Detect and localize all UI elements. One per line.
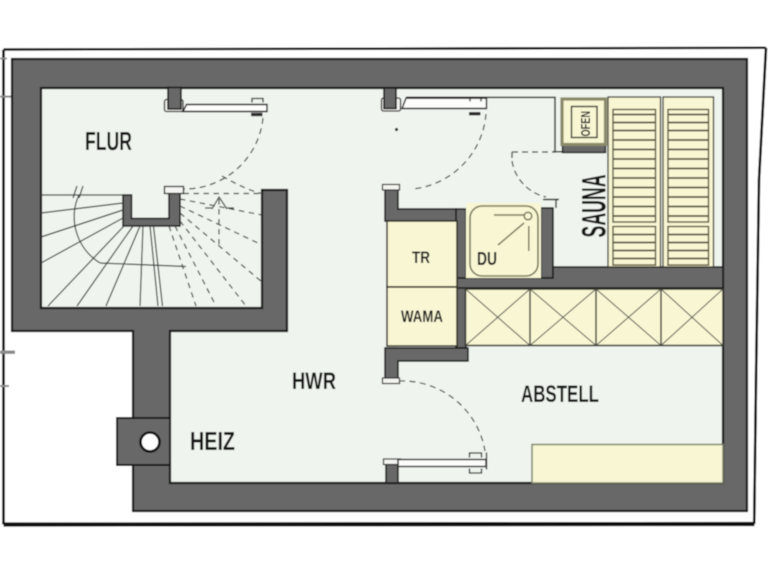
svg-text:TR: TR [412, 248, 430, 267]
svg-text:HEIZ: HEIZ [190, 426, 235, 456]
svg-text:OFEN: OFEN [579, 111, 593, 137]
svg-text:FLUR: FLUR [85, 126, 132, 156]
svg-text:SAUNA: SAUNA [576, 175, 614, 238]
svg-text:WAMA: WAMA [401, 307, 443, 326]
svg-text:DU: DU [477, 249, 497, 269]
svg-text:HWR: HWR [292, 368, 336, 395]
svg-text:ABSTELL: ABSTELL [521, 381, 599, 408]
